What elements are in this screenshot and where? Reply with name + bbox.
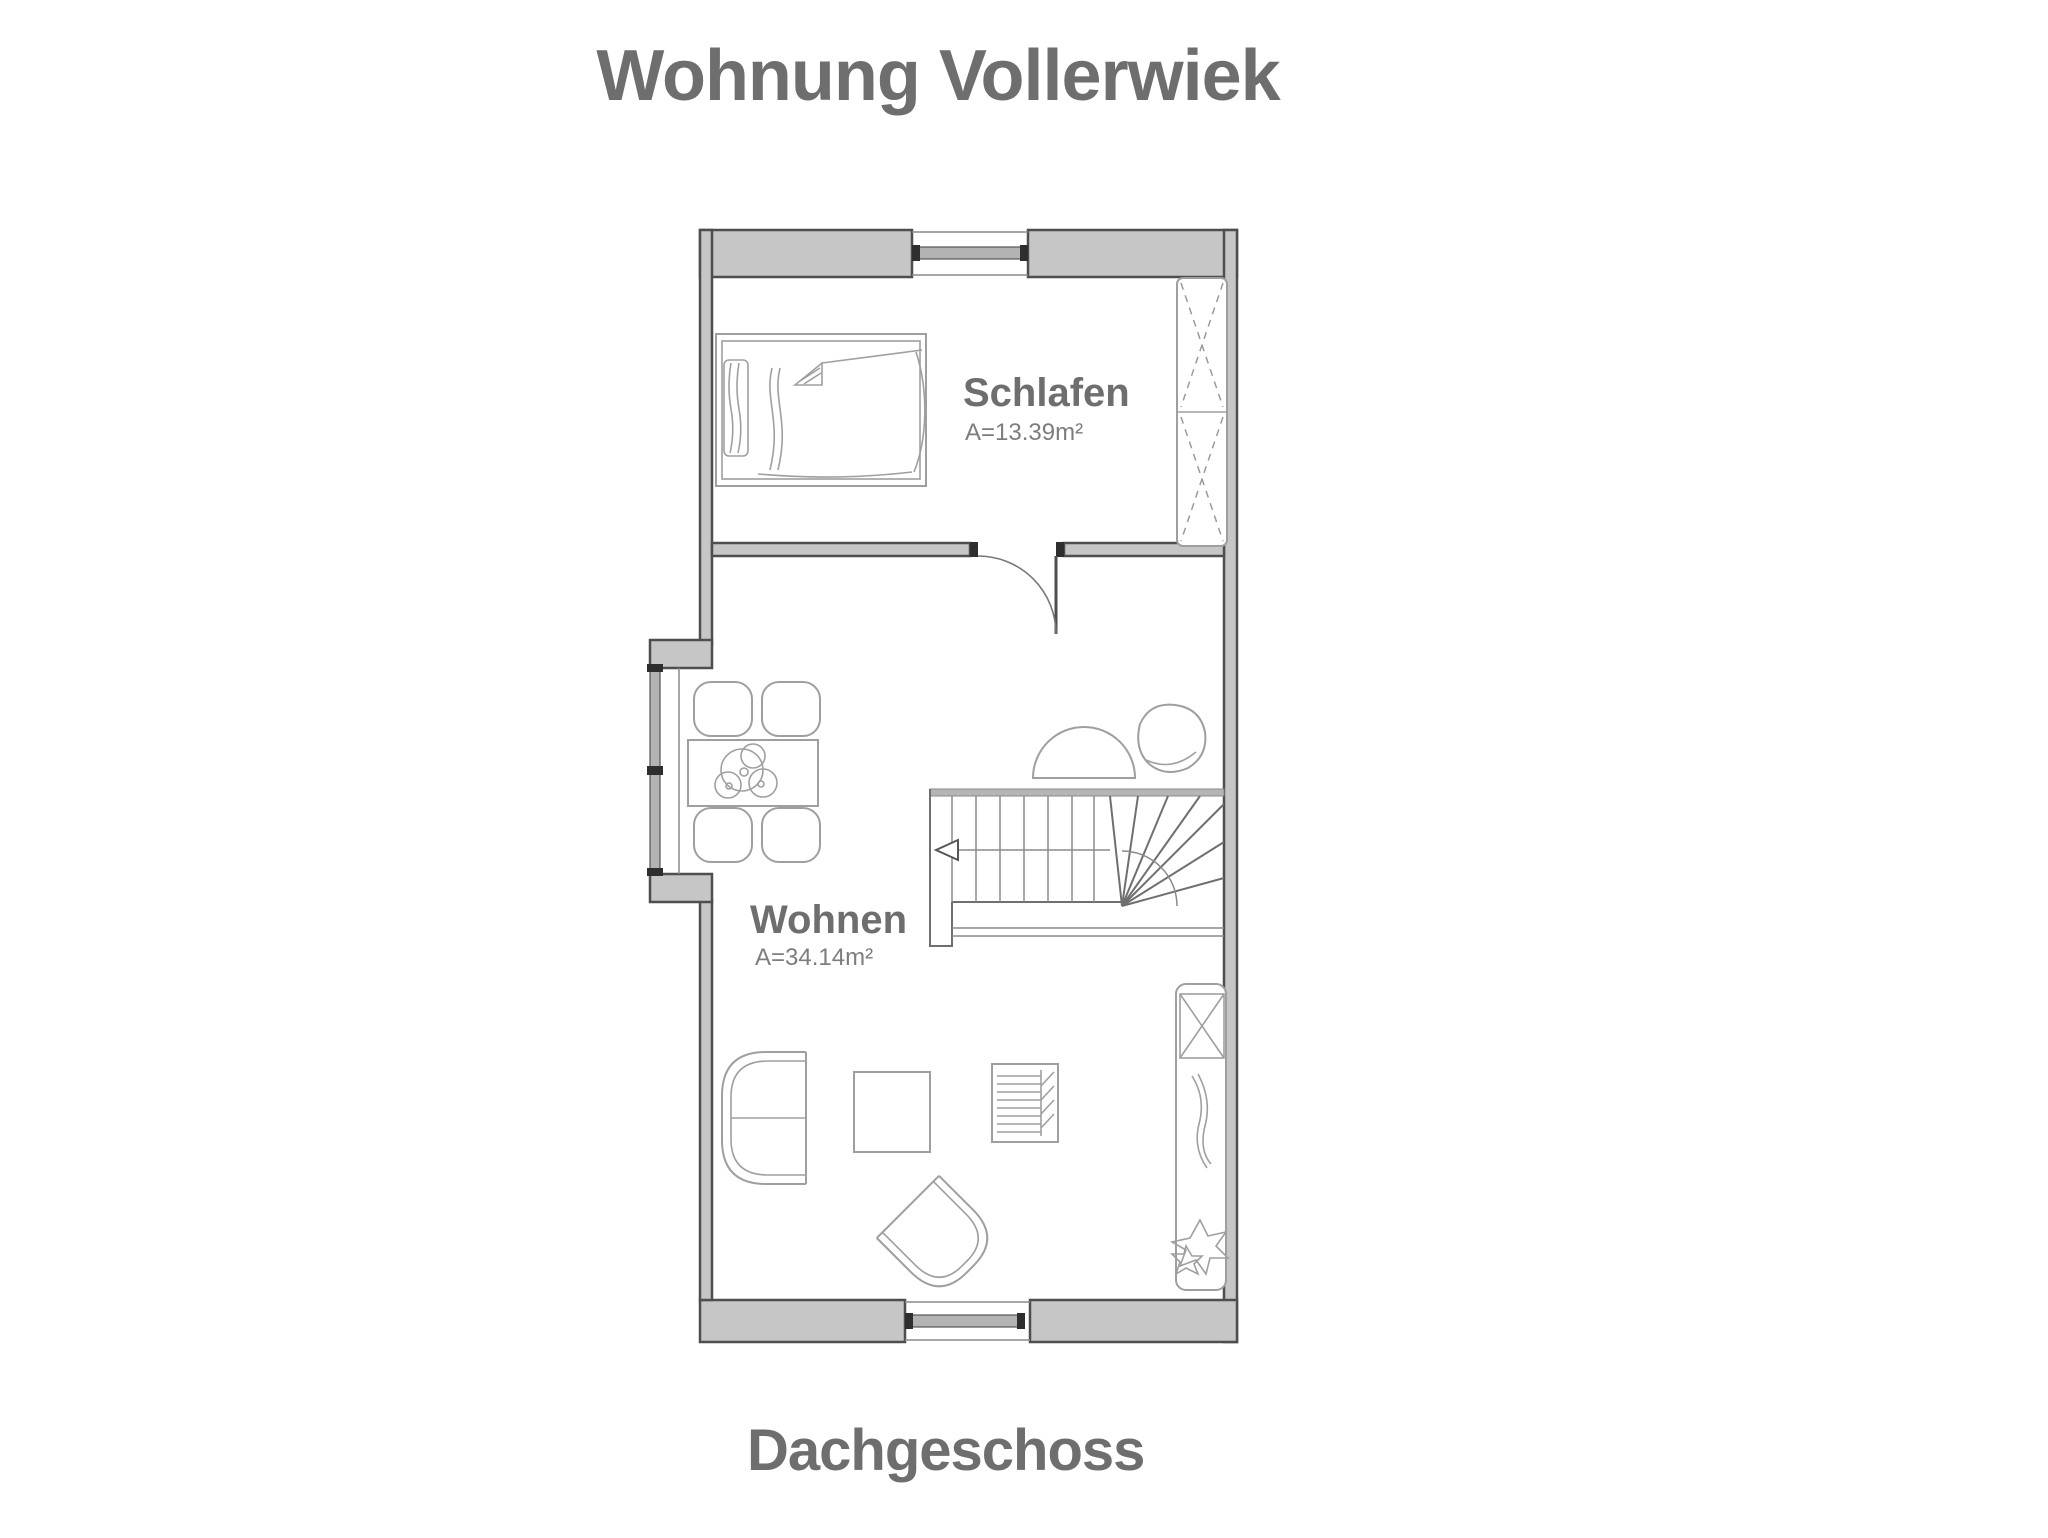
stair-direction-arrow [936, 840, 958, 860]
shelf-unit [992, 1064, 1058, 1142]
dining-chair [762, 808, 820, 862]
wall-top-left [700, 230, 912, 277]
wall-top-right [1028, 230, 1237, 277]
niche-stub-bottom [650, 874, 712, 902]
interior-wall [712, 542, 1224, 557]
interior-wall-left [712, 543, 970, 556]
wall-left-lower [700, 900, 712, 1300]
dining-chair [694, 808, 752, 862]
room-label-wohnen: Wohnen [750, 898, 907, 942]
coffee-table [854, 1072, 930, 1152]
half-round-table [1033, 727, 1135, 778]
bed [716, 334, 926, 486]
window-top [912, 232, 1028, 275]
pouf [1138, 705, 1205, 772]
staircase [930, 789, 1224, 946]
wall-bottom-right [1030, 1300, 1237, 1342]
floor-label: Dachgeschoss [747, 1418, 1144, 1483]
dining-chair [694, 682, 752, 736]
dining-area [688, 682, 820, 862]
sideboard [1172, 984, 1228, 1290]
window-bottom [905, 1302, 1030, 1340]
wardrobe [1177, 278, 1227, 546]
niche-window [647, 664, 679, 876]
room-label-schlafen: Schlafen [963, 371, 1130, 415]
room-area-schlafen: A=13.39m² [965, 419, 1083, 446]
wall-bottom-left [700, 1300, 905, 1342]
sofa [722, 1052, 806, 1184]
armchair [877, 1176, 1001, 1300]
floor-plan-page: Wohnung Vollerwiek [0, 0, 2048, 1538]
room-area-wohnen: A=34.14m² [755, 944, 873, 971]
niche-stub-top [650, 640, 712, 668]
interior-door [978, 556, 1056, 634]
wall-left-upper [700, 230, 712, 645]
floor-plan-drawing: Wohnung Vollerwiek [0, 0, 2048, 1538]
dining-chair [762, 682, 820, 736]
page-title: Wohnung Vollerwiek [596, 36, 1281, 116]
